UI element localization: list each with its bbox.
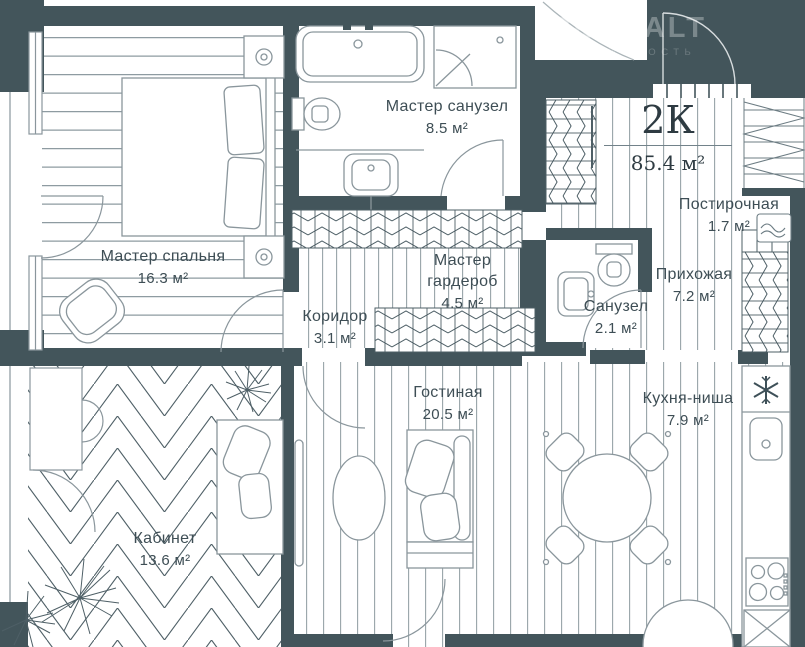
- hall-wardrobe-right: [742, 252, 788, 352]
- master-bath-door: [441, 140, 503, 196]
- dining-table: [563, 454, 651, 542]
- room-area: 1.7 м²: [664, 217, 794, 237]
- unit-type: 2К: [604, 100, 732, 142]
- kitchen-units: [742, 366, 790, 647]
- tv: [295, 440, 303, 566]
- room-label-master-wardrobe: Мастер гардероб 4.5 м²: [405, 250, 520, 314]
- room-area: 16.3 м²: [83, 269, 243, 289]
- room-name: Мастер гардероб: [405, 250, 520, 292]
- master-wardrobe-rack-top: [292, 210, 522, 248]
- brand-pin-icon: [548, 14, 594, 66]
- room-area: 3.1 м²: [285, 329, 385, 349]
- room-area: 7.9 м²: [628, 411, 748, 431]
- room-area: 8.5 м²: [367, 119, 527, 139]
- room-area: 4.5 м²: [405, 294, 520, 314]
- toilet-wc-tank: [596, 244, 632, 254]
- bed-headboard: [266, 76, 275, 238]
- room-name: Мастер спальня: [83, 246, 243, 267]
- room-name: Мастер санузел: [367, 96, 527, 117]
- room-name: Гостиная: [388, 382, 508, 403]
- room-label-living: Гостиная 20.5 м²: [388, 382, 508, 425]
- office-window-bay: [30, 368, 82, 470]
- sofa-cushion: [419, 492, 461, 543]
- tv-console: [407, 542, 473, 568]
- room-label-corridor: Коридор 3.1 м²: [285, 306, 385, 349]
- watermark-logo: ONREALT НЕДВИЖИМОСТЬ: [548, 14, 798, 58]
- pillow: [224, 157, 265, 229]
- room-label-master-bedroom: Мастер спальня 16.3 м²: [83, 246, 243, 289]
- office-sofa-cushion: [238, 473, 272, 520]
- room-name: Постирочная: [664, 194, 794, 215]
- room-name: Коридор: [285, 306, 385, 327]
- room-name: Кабинет: [103, 528, 227, 549]
- side-table: [333, 456, 385, 540]
- unit-total-area: 85.4 м²: [604, 145, 732, 175]
- master-wardrobe-rack-bottom: [375, 308, 535, 352]
- room-name: Прихожая: [644, 264, 744, 285]
- room-label-master-bath: Мастер санузел 8.5 м²: [367, 96, 527, 139]
- pillow: [224, 85, 265, 155]
- room-label-office: Кабинет 13.6 м²: [103, 528, 227, 571]
- kitchen-sink: [750, 418, 782, 460]
- laundry-shelf-closet: [744, 96, 804, 189]
- room-label-kitchen: Кухня-ниша 7.9 м²: [628, 388, 748, 431]
- room-area: 13.6 м²: [103, 551, 227, 571]
- toilet-master: [292, 98, 304, 130]
- room-label-wc: Санузел 2.1 м²: [570, 296, 662, 339]
- hall-wardrobe-left: [546, 100, 596, 204]
- shower: [434, 26, 516, 88]
- room-area: 20.5 м²: [388, 405, 508, 425]
- room-name: Кухня-ниша: [628, 388, 748, 409]
- room-label-laundry: Постирочная 1.7 м²: [664, 194, 794, 237]
- room-name: Санузел: [570, 296, 662, 317]
- unit-label: 2К 85.4 м²: [604, 100, 732, 175]
- room-area: 2.1 м²: [570, 319, 662, 339]
- floor-plan: ONREALT НЕДВИЖИМОСТЬ 2К 85.4 м² Мастер с…: [0, 0, 805, 647]
